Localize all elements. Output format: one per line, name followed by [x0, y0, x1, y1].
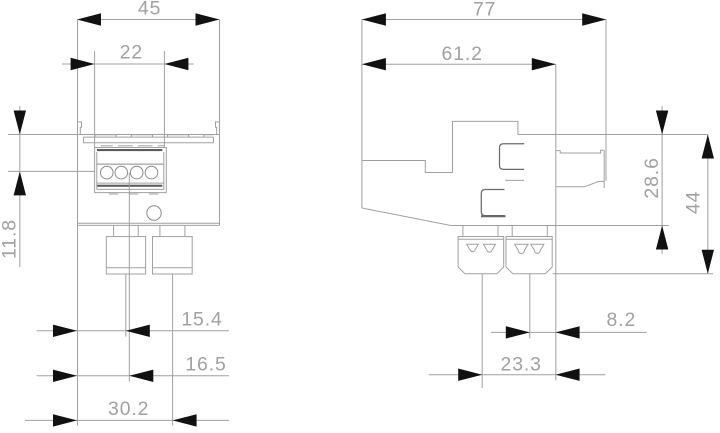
- svg-text:45: 45: [138, 0, 161, 20]
- svg-text:77: 77: [473, 0, 496, 20]
- svg-text:11.8: 11.8: [0, 219, 21, 259]
- svg-text:28.6: 28.6: [641, 157, 663, 198]
- svg-text:16.5: 16.5: [185, 354, 226, 376]
- svg-text:8.2: 8.2: [606, 309, 636, 331]
- svg-text:61.2: 61.2: [442, 43, 483, 65]
- svg-text:22: 22: [120, 42, 143, 64]
- svg-text:30.2: 30.2: [108, 398, 149, 420]
- svg-text:23.3: 23.3: [501, 354, 542, 376]
- svg-text:15.4: 15.4: [181, 309, 222, 331]
- svg-text:44: 44: [683, 191, 705, 214]
